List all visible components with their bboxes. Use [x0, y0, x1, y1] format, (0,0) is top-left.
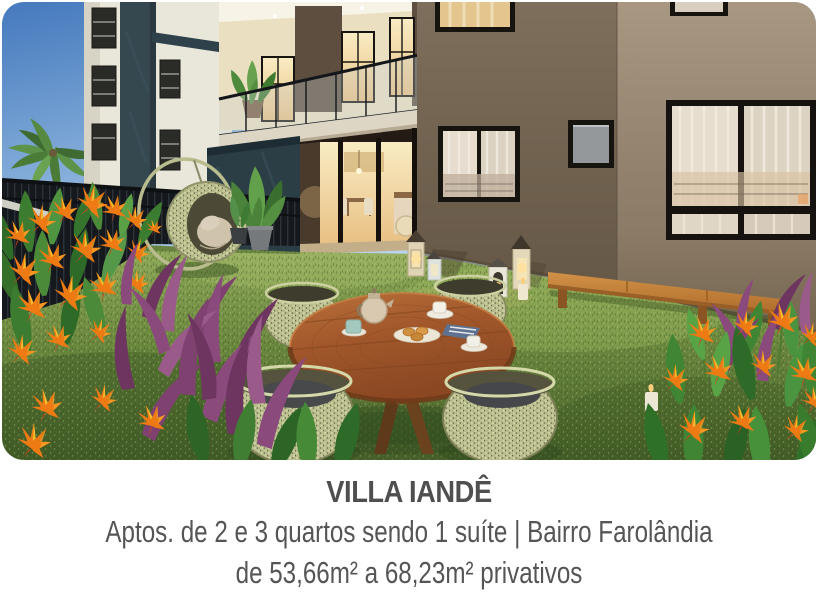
caption-line-2: de 53,66m² a 68,23m² privativos	[90, 553, 728, 592]
property-rendering	[2, 2, 816, 460]
wicker-chair-front-right	[438, 368, 562, 460]
project-title: VILLA IANDÊ	[49, 474, 769, 510]
garden-rendering-illustration	[2, 2, 816, 460]
caption-block: VILLA IANDÊ Aptos. de 2 e 3 quartos send…	[0, 474, 818, 592]
caption-line-1: Aptos. de 2 e 3 quartos sendo 1 suíte | …	[90, 512, 728, 551]
window-curtained	[438, 126, 520, 202]
window-large-right	[666, 100, 816, 240]
window-top-right	[670, 2, 728, 16]
window-small-square	[568, 120, 614, 168]
window-top-left	[435, 2, 515, 32]
